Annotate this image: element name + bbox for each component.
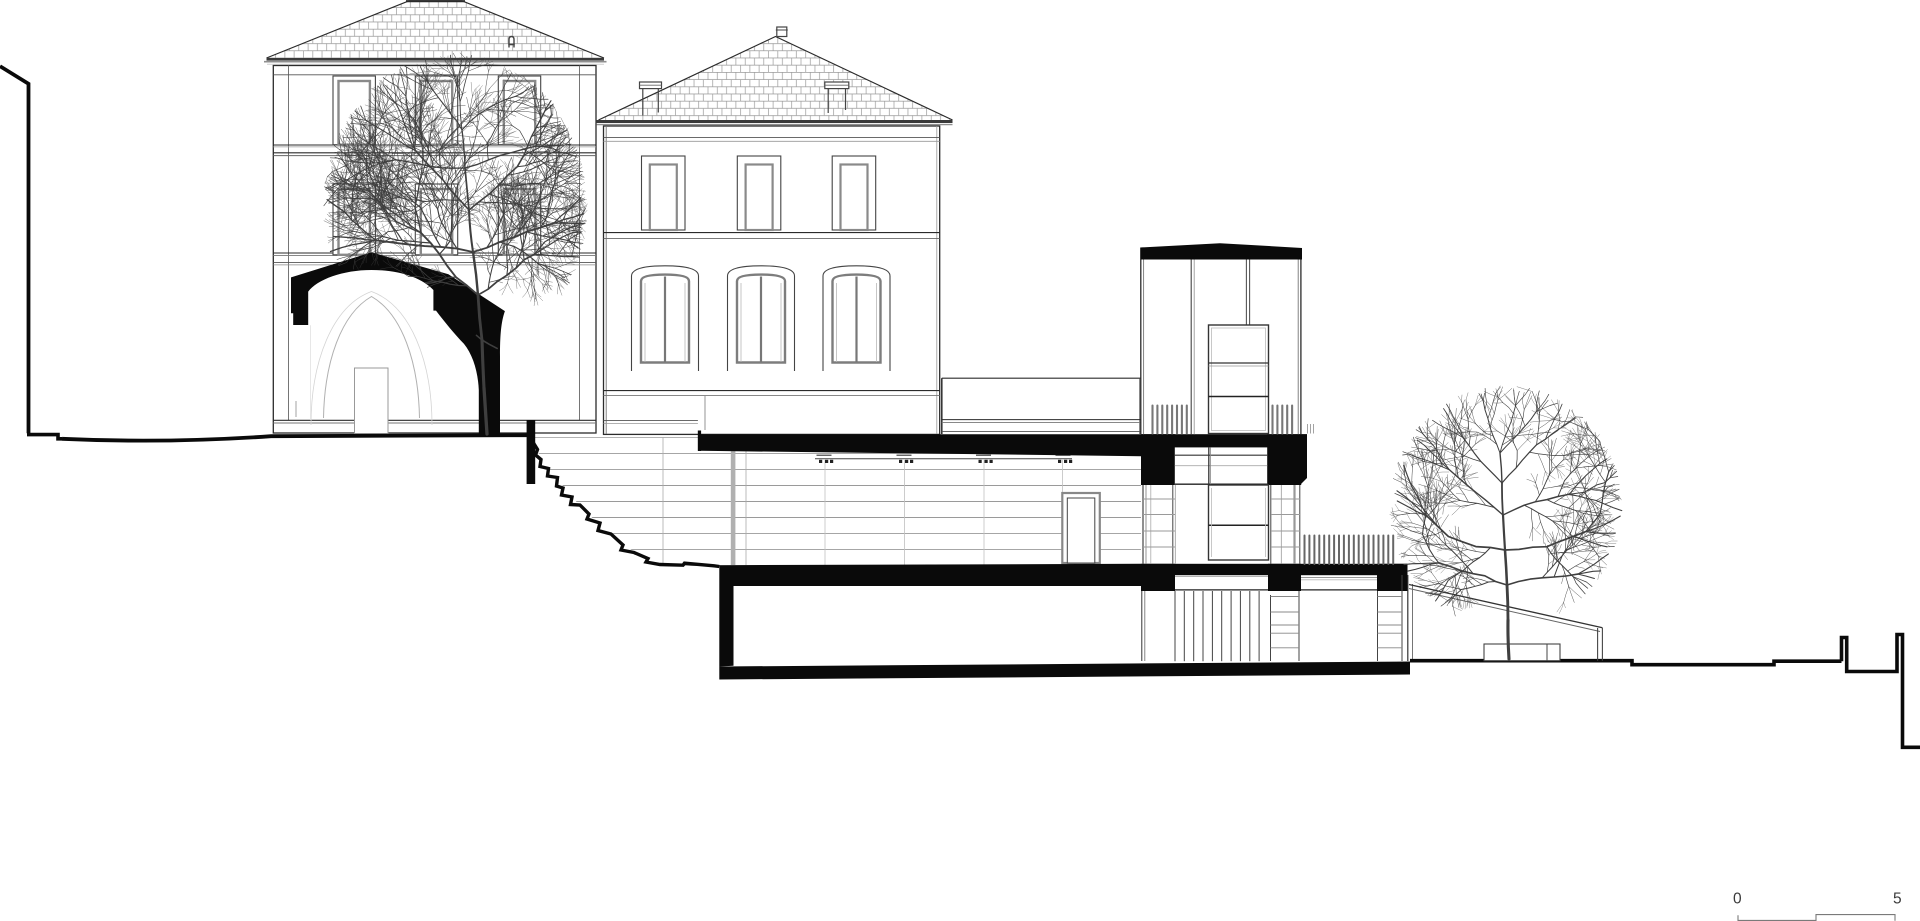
svg-text:5: 5 xyxy=(1893,891,1902,908)
svg-text:0: 0 xyxy=(1733,891,1742,908)
